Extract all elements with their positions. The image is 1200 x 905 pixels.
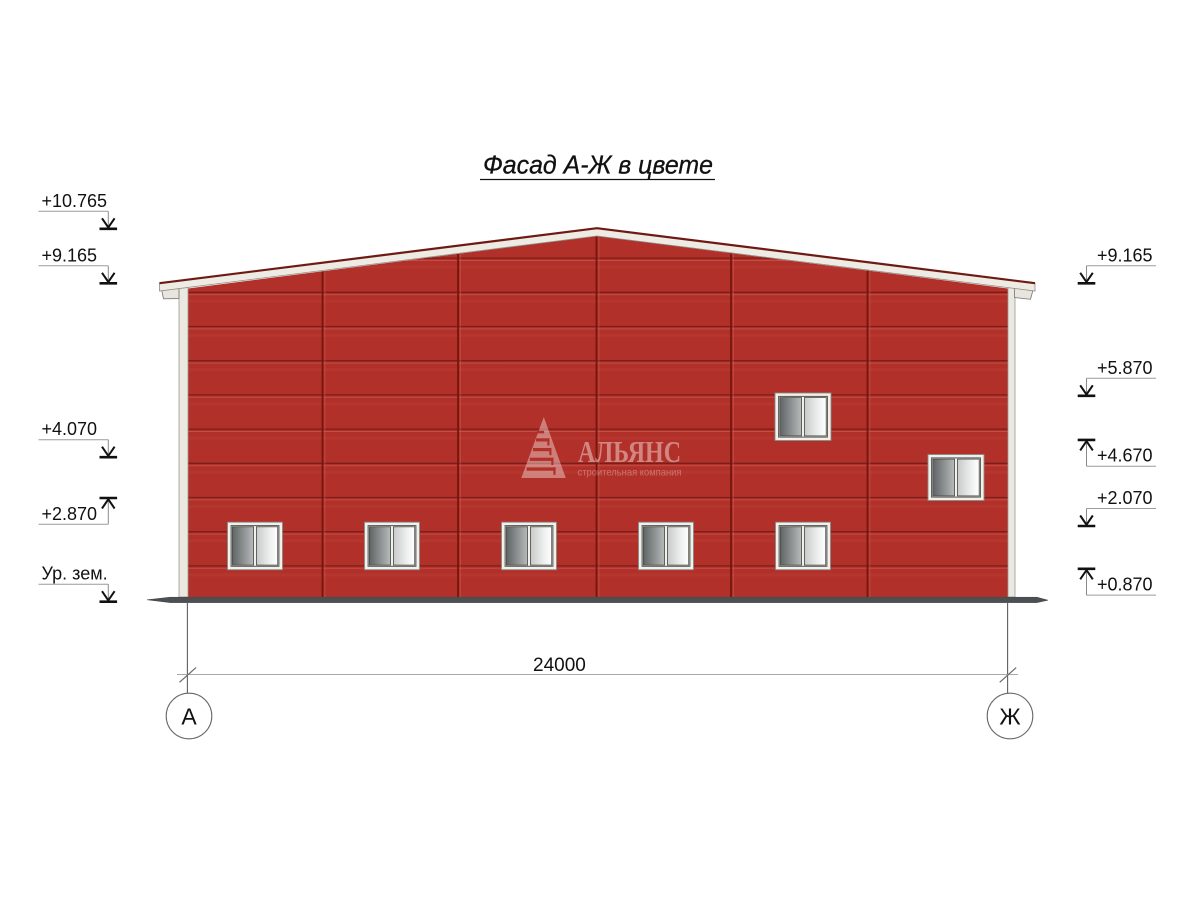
svg-text:+0.870: +0.870 — [1097, 575, 1153, 595]
svg-text:строительная компания: строительная компания — [578, 467, 682, 479]
svg-text:24000: 24000 — [533, 655, 586, 676]
svg-text:+2.070: +2.070 — [1097, 488, 1153, 508]
svg-text:+4.070: +4.070 — [42, 419, 98, 439]
svg-text:Ж: Ж — [999, 704, 1020, 730]
svg-text:+2.870: +2.870 — [42, 504, 98, 524]
svg-text:+9.165: +9.165 — [42, 245, 98, 265]
svg-text:+4.670: +4.670 — [1097, 446, 1153, 466]
svg-text:+9.165: +9.165 — [1097, 245, 1153, 265]
svg-text:Фасад А-Ж в цвете: Фасад А-Ж в цвете — [483, 150, 713, 180]
svg-text:+10.765: +10.765 — [42, 191, 108, 211]
svg-text:Ур. зем.: Ур. зем. — [42, 564, 108, 584]
svg-text:+5.870: +5.870 — [1097, 358, 1153, 378]
svg-text:А: А — [181, 704, 197, 730]
svg-text:АЛЬЯНС: АЛЬЯНС — [578, 434, 681, 469]
